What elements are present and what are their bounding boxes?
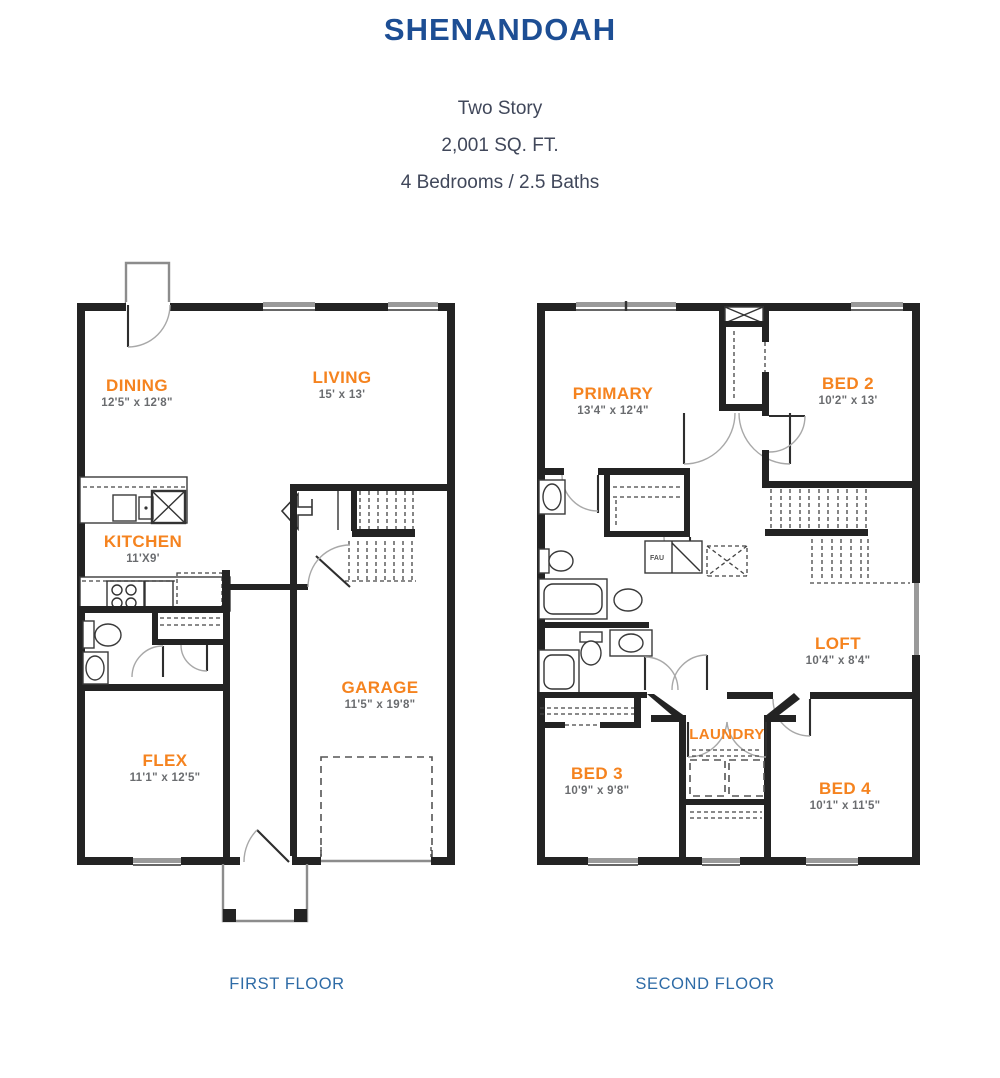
window [133,856,181,866]
room-label-bed2: BED 2 10'2" x 13' [819,375,878,407]
powder-room [77,606,230,862]
stairs [763,481,920,583]
kitchen-counter [80,570,230,612]
window [806,856,858,866]
toilet-icon [83,621,121,648]
bathtub-icon [539,650,579,694]
room-label-bed4: BED 4 10'1" x 11'5" [810,780,881,812]
room-label-kitchen: KITCHEN 11'X9' [104,533,182,565]
laundry-room [647,693,800,865]
window [388,300,438,313]
bed2-entry [762,411,805,488]
sink-icon [610,630,652,656]
first-floor-plan [77,263,455,922]
hall-double-doors [684,413,790,464]
room-label-primary: PRIMARY 13'4" x 12'4" [573,385,654,417]
room-label-garage: GARAGE 11'5" x 19'8" [341,679,418,711]
window [702,856,740,866]
sink-icon [614,589,642,611]
room-label-bed3: BED 3 10'9" x 9'8" [565,765,630,797]
attic-access-icon [707,546,747,576]
mechanical-closet: FAU [645,541,747,576]
sink-icon [83,652,108,684]
fau-label: FAU [650,555,664,562]
toilet-icon [580,632,602,665]
garage [290,484,432,866]
window [912,583,920,655]
stairs [230,484,455,590]
room-label-dining: DINING 12'5" x 12'8" [101,377,172,409]
kitchen-island [80,477,187,523]
room-label-loft: LOFT 10'4" x 8'4" [806,635,871,667]
second-floor-caption: SECOND FLOOR [635,975,774,994]
sink-icon [539,480,565,514]
room-label-flex: FLEX 11'1" x 12'5" [130,752,201,784]
window [588,856,638,866]
washer-icon [690,760,725,796]
floorplan-page: SHENANDOAH Two Story 2,001 SQ. FT. 4 Bed… [0,0,1000,1078]
first-floor-caption: FIRST FLOOR [229,975,344,994]
window [263,300,315,313]
room-label-living: LIVING 15' x 13' [312,369,371,401]
window [851,300,903,313]
hall-closet [719,307,769,411]
toilet-icon [539,549,573,573]
window [576,300,676,313]
room-label-laundry: LAUNDRY [689,726,765,744]
front-porch [126,263,170,347]
bathtub-icon [539,579,607,619]
dryer-icon [729,760,764,796]
